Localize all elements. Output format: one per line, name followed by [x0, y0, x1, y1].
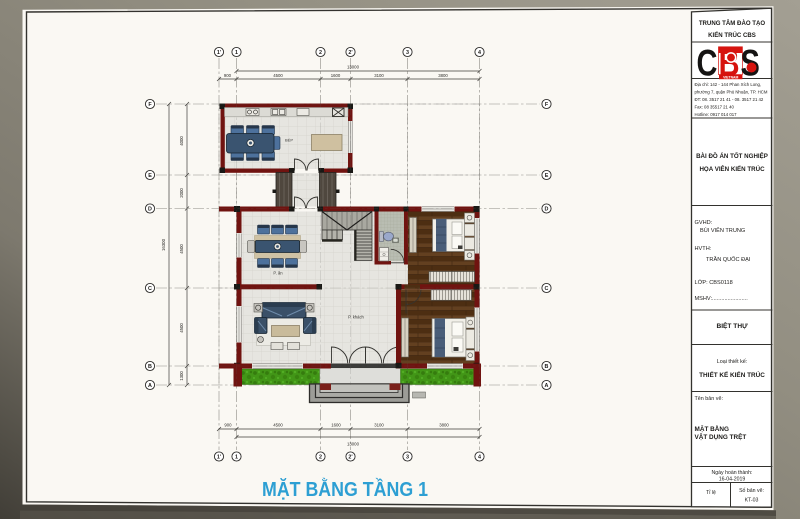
svg-text:1300: 1300 [179, 371, 184, 381]
svg-text:Tỉ lệ: Tỉ lệ [706, 489, 716, 496]
svg-text:A: A [545, 383, 549, 389]
svg-text:2': 2' [348, 50, 352, 56]
svg-text:KT-03: KT-03 [745, 498, 759, 504]
svg-text:4: 4 [478, 50, 481, 56]
svg-text:2: 2 [319, 455, 322, 461]
svg-text:4500: 4500 [273, 73, 283, 78]
svg-text:16300: 16300 [161, 238, 166, 251]
svg-text:TRUNG TÂM ĐÀO TẠO: TRUNG TÂM ĐÀO TẠO [699, 20, 766, 27]
svg-text:TRẦN QUỐC ĐẠI: TRẦN QUỐC ĐẠI [706, 256, 751, 263]
svg-text:3100: 3100 [374, 423, 384, 428]
svg-text:1': 1' [217, 50, 221, 56]
svg-text:2000: 2000 [179, 188, 184, 198]
svg-text:Số bản vẽ:: Số bản vẽ: [739, 488, 764, 494]
svg-text:C: C [545, 286, 549, 292]
svg-text:C: C [148, 286, 152, 292]
svg-text:VIETNAM: VIETNAM [723, 75, 738, 79]
svg-text:KIẾN TRÚC CBS: KIẾN TRÚC CBS [708, 32, 756, 39]
svg-text:P. ăn: P. ăn [273, 271, 283, 276]
svg-text:4000: 4000 [179, 136, 184, 146]
svg-text:Địa chỉ: 142 - 144 Phan Xích L: Địa chỉ: 142 - 144 Phan Xích Long, [695, 82, 762, 87]
svg-text:1600: 1600 [331, 423, 341, 428]
svg-text:B: B [545, 364, 549, 370]
svg-text:4500: 4500 [179, 244, 184, 254]
svg-text:3100: 3100 [374, 73, 384, 78]
svg-text:3800: 3800 [439, 423, 449, 428]
svg-text:P. khách: P. khách [348, 315, 364, 320]
svg-text:4500: 4500 [273, 423, 283, 428]
svg-text:13000: 13000 [347, 65, 360, 70]
svg-text:GVHD:: GVHD: [695, 220, 713, 226]
svg-text:E: E [545, 173, 549, 179]
svg-text:MẶT BẰNG TẦNG 1: MẶT BẰNG TẦNG 1 [262, 477, 428, 501]
svg-text:900: 900 [224, 73, 232, 78]
svg-text:MSHV:.......................: MSHV:....................... [695, 296, 749, 302]
svg-text:3: 3 [406, 50, 409, 56]
svg-text:Tên bản vẽ:: Tên bản vẽ: [695, 396, 723, 402]
svg-text:3800: 3800 [438, 73, 448, 78]
svg-text:C: C [697, 43, 718, 84]
svg-text:BIỆT THỰ: BIỆT THỰ [716, 321, 748, 330]
svg-text:900: 900 [224, 423, 232, 428]
svg-text:E: E [148, 173, 152, 179]
svg-text:D: D [148, 207, 152, 213]
svg-text:16-04-2019: 16-04-2019 [719, 477, 746, 483]
svg-text:2: 2 [319, 50, 322, 56]
svg-text:BÀI ĐỒ ÁN TỐT NGHIỆP: BÀI ĐỒ ÁN TỐT NGHIỆP [696, 152, 768, 160]
svg-text:Fax: 08 35517 21 40: Fax: 08 35517 21 40 [695, 105, 735, 110]
svg-text:HỌA VIÊN KIẾN TRÚC: HỌA VIÊN KIẾN TRÚC [699, 165, 765, 173]
svg-text:BẾP: BẾP [285, 138, 293, 143]
svg-text:Ngày hoàn thành:: Ngày hoàn thành: [712, 470, 753, 476]
svg-text:3: 3 [406, 455, 409, 461]
svg-text:2': 2' [348, 455, 352, 461]
svg-text:BÙI VIỄN TRUNG: BÙI VIỄN TRUNG [700, 227, 745, 234]
svg-text:VẬT DỤNG TRỆT: VẬT DỤNG TRỆT [695, 432, 747, 441]
svg-text:HVTH:: HVTH: [695, 246, 712, 252]
svg-text:Loại thiết kế:: Loại thiết kế: [717, 359, 748, 365]
svg-text:ĐT: 08. 3517 21 41 - 08. 3517: ĐT: 08. 3517 21 41 - 08. 3517 21 42 [695, 97, 764, 102]
svg-text:4500: 4500 [179, 323, 184, 333]
svg-text:1: 1 [235, 50, 238, 56]
svg-text:B: B [148, 364, 152, 370]
svg-text:MẶT BẰNG: MẶT BẰNG [695, 424, 729, 433]
svg-text:1600: 1600 [331, 73, 341, 78]
svg-text:Hotline: 0917 014 017: Hotline: 0917 014 017 [695, 112, 738, 117]
svg-text:1': 1' [217, 455, 221, 461]
svg-text:D: D [545, 207, 549, 213]
svg-text:A: A [148, 383, 152, 389]
svg-text:LỚP: CBS0118: LỚP: CBS0118 [695, 279, 733, 286]
svg-text:13000: 13000 [347, 442, 360, 447]
svg-text:1: 1 [235, 455, 238, 461]
svg-text:4: 4 [478, 455, 481, 461]
svg-text:phường 7, quận Phú Nhuận, TP.: phường 7, quận Phú Nhuận, TP. HCM [695, 90, 768, 95]
